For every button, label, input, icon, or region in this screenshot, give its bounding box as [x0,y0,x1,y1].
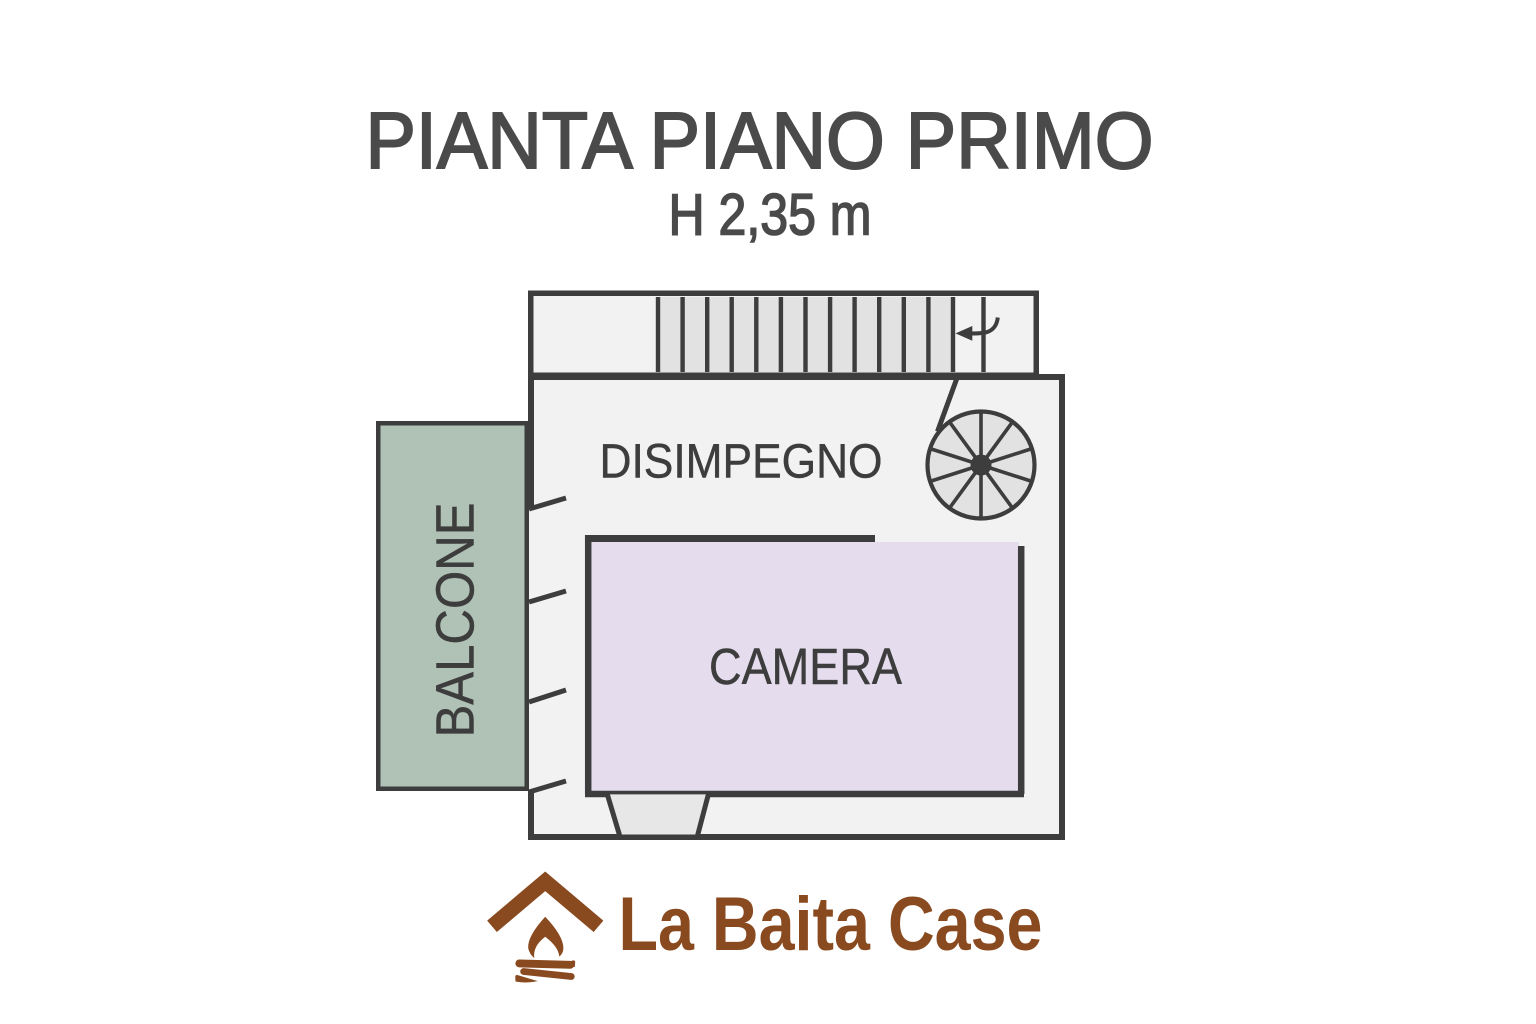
svg-text:PIANTA PIANO PRIMO: PIANTA PIANO PRIMO [366,96,1154,185]
svg-text:La Baita Case: La Baita Case [619,882,1043,967]
svg-text:H 2,35 m: H 2,35 m [669,183,872,248]
svg-text:DISIMPEGNO: DISIMPEGNO [600,436,883,489]
svg-text:CAMERA: CAMERA [709,638,902,695]
svg-text:BALCONE: BALCONE [426,503,486,738]
